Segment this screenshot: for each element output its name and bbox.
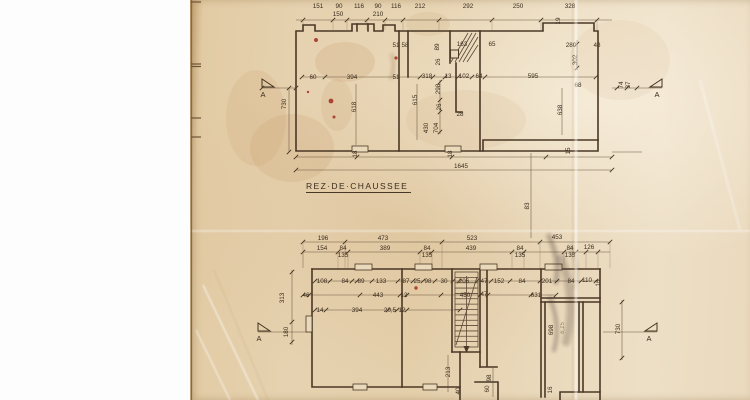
dimension-label: 60 <box>484 385 491 393</box>
dimension-label: 110 <box>582 277 593 284</box>
dimension-label: 453 <box>552 234 563 241</box>
dimension-label: 318 <box>422 73 433 80</box>
dimension-label: 615 <box>412 94 419 105</box>
dimension-label: 618 <box>351 101 358 112</box>
dimension-label: 180 <box>283 326 290 337</box>
dimension-label: 638 <box>557 104 564 115</box>
dimension-label: 163 <box>457 41 468 48</box>
dimension-label: 64 <box>475 73 483 80</box>
dimension-label: 394 <box>352 307 363 314</box>
plan-title: REZ·DE·CHAUSSEE <box>306 181 411 193</box>
floor-plan-drawing: 1519011690116212292250328150210195158891… <box>0 0 750 400</box>
dimension-label: 213 <box>445 366 452 377</box>
dimension-label: 394 <box>347 74 358 81</box>
section-marker-letter: A <box>256 334 261 343</box>
dimension-label: 16 <box>547 386 554 394</box>
section-marker-letter: A <box>654 90 659 99</box>
dimension-label: 328 <box>565 3 576 10</box>
dimension-label: 84 <box>341 278 349 285</box>
dimension-label: 84 <box>423 245 431 252</box>
dimension-label: 37 <box>625 81 632 89</box>
dimension-label: 389 <box>380 245 391 252</box>
dimension-label: 28 <box>456 111 464 118</box>
dimension-label: 595 <box>528 73 539 80</box>
dimension-label: 150 <box>333 11 344 18</box>
dimension-label: 58 <box>401 42 409 49</box>
dimension-label: 40 <box>455 387 462 395</box>
dimension-label: 30 <box>440 278 448 285</box>
dimension-label: 450 <box>460 292 471 299</box>
dimension-label: 152 <box>494 278 505 285</box>
dimension-label: 13 <box>444 73 452 80</box>
dimension-label: 473 <box>378 235 389 242</box>
dimension-label: 292 <box>463 3 474 10</box>
dimension-label: 87 <box>402 278 410 285</box>
dimension-label: 83 <box>524 202 531 210</box>
dimension-label: 46 <box>302 292 310 299</box>
dimension-label: 250 <box>513 3 524 10</box>
dimension-label: 15 <box>565 147 572 155</box>
dimension-label: 151 <box>313 3 324 10</box>
dimension-label: 84 <box>518 278 526 285</box>
dimension-label: 206 <box>459 278 470 285</box>
dimension-label: 704 <box>433 122 440 133</box>
dimension-label: 730 <box>615 323 622 334</box>
scanned-blueprint-page: 1519011690116212292250328150210195158891… <box>0 0 750 400</box>
dimension-label: 1645 <box>454 163 469 170</box>
dimension-label: 102 <box>459 73 470 80</box>
dimension-label: 18 <box>352 150 359 158</box>
dimension-label: 84 <box>339 245 347 252</box>
dimension-label: 313 <box>279 292 286 303</box>
paper-edge-marks <box>191 0 201 400</box>
dimension-label: 19 <box>555 17 562 25</box>
dimension-label: 298 <box>435 83 442 94</box>
section-marker-letter: A <box>260 90 265 99</box>
section-marker-letter: A <box>646 334 651 343</box>
dimension-label: 16 <box>595 279 602 287</box>
dimension-label: 135 <box>515 252 526 259</box>
dimension-label: 135 <box>422 252 433 259</box>
dimension-label: 89 <box>434 43 441 51</box>
dimension-label: 84 <box>516 245 524 252</box>
dimension-label: 212 <box>415 3 426 10</box>
dimension-label: 90 <box>374 3 382 10</box>
dimension-label: 90 <box>335 3 343 10</box>
dimension-label: 47 <box>480 278 488 285</box>
dimension-label: 730 <box>281 98 288 109</box>
dimension-label: 25 <box>413 278 421 285</box>
dimension-label: 443 <box>373 292 384 299</box>
dimension-label: 98 <box>486 374 493 382</box>
dimension-label: 210 <box>373 11 384 18</box>
dimension-label: 12 <box>398 307 406 314</box>
dimension-label: 108 <box>317 278 328 285</box>
dimension-label: 201 <box>542 278 553 285</box>
dimension-label: 60 <box>309 74 317 81</box>
dimension-label: 698 <box>548 324 555 335</box>
dimension-label: 116 <box>354 3 365 10</box>
dimension-label: 133 <box>376 278 387 285</box>
dimension-label: 89 <box>357 278 365 285</box>
dimension-label: 439 <box>466 245 477 252</box>
dimension-label: 51 <box>392 74 400 81</box>
dimension-label: 98 <box>424 278 432 285</box>
dimension-label: 154 <box>317 245 328 252</box>
dimension-label: 20,5 <box>384 307 397 314</box>
dimension-label: 48 <box>593 42 601 49</box>
dimension-label: 135 <box>338 252 349 259</box>
dimension-label: 126 <box>584 244 595 251</box>
dimension-label: 631 <box>531 292 542 299</box>
dimension-label: 14 <box>316 307 324 314</box>
dimension-label: 51 <box>392 42 400 49</box>
dimension-label: 18 <box>447 150 454 158</box>
dimension-label: 47 <box>480 291 488 298</box>
dimension-label: 430 <box>423 122 430 133</box>
dimension-label: 12 <box>400 292 408 299</box>
dimension-label: 26 <box>435 58 442 66</box>
dimension-label: 74 <box>618 81 625 89</box>
dimension-label: 65 <box>488 41 496 48</box>
dimension-label: 196 <box>318 235 329 242</box>
dimension-label: 523 <box>467 235 478 242</box>
dimension-label: 26 <box>436 103 443 111</box>
dimension-label: 116 <box>391 3 402 10</box>
